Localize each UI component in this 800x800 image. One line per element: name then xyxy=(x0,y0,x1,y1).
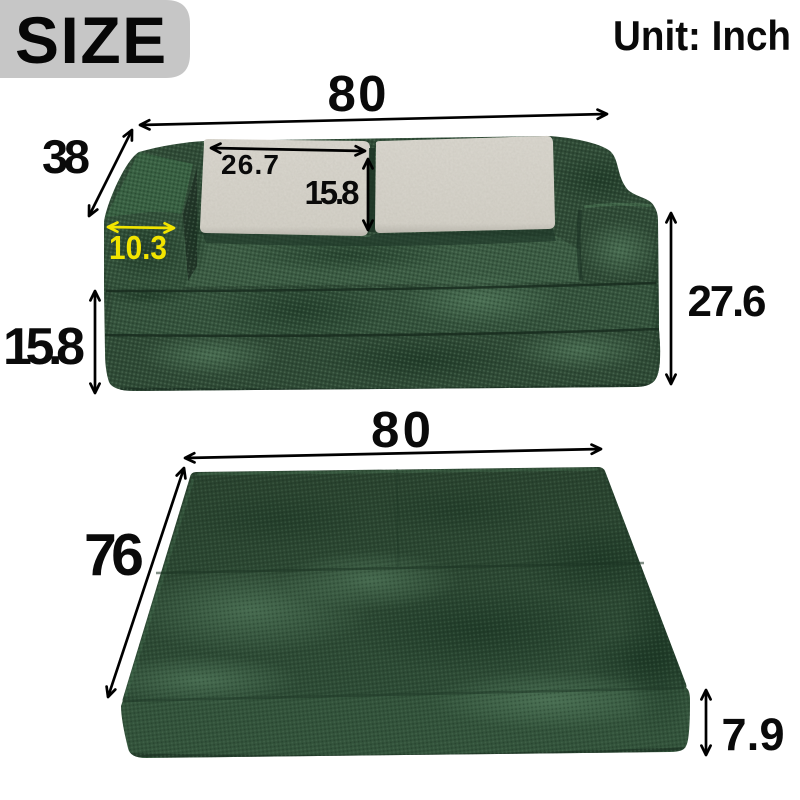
svg-text:26.7: 26.7 xyxy=(221,149,279,180)
svg-text:15.8: 15.8 xyxy=(3,318,85,376)
svg-text:15.8: 15.8 xyxy=(305,174,360,211)
svg-text:27.6: 27.6 xyxy=(688,277,767,326)
svg-text:10.3: 10.3 xyxy=(109,229,167,266)
svg-text:76: 76 xyxy=(84,522,144,588)
svg-text:SIZE: SIZE xyxy=(15,3,168,77)
svg-text:Unit: Inch: Unit: Inch xyxy=(613,12,791,59)
svg-text:38: 38 xyxy=(42,130,90,183)
svg-text:7.9: 7.9 xyxy=(722,709,785,760)
